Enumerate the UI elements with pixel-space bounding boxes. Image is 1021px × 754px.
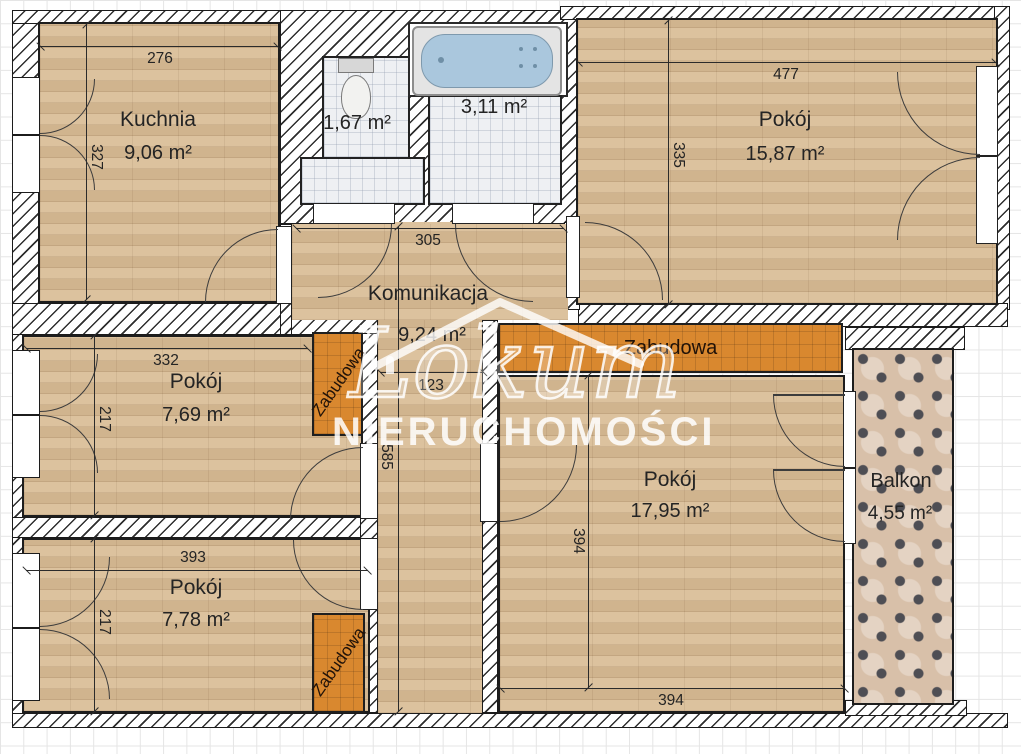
room-label-pokoj-a: Pokój — [715, 108, 855, 132]
dimension-label: 394 — [569, 511, 587, 571]
door-opening-kitchen — [276, 226, 292, 304]
floor-plan: Zabudowa Zabudowa Zabudowa — [0, 0, 1021, 754]
door-opening-bathroom — [452, 203, 534, 224]
room-area-wc: 1,67 m² — [298, 112, 416, 135]
dimension-line — [500, 688, 845, 689]
balcony-floor — [852, 348, 954, 705]
dimension-label: 332 — [135, 352, 197, 370]
dimension-label: 394 — [640, 692, 702, 710]
dimension-line — [26, 570, 368, 571]
wall-hatch-balcony-top — [845, 327, 965, 350]
dimension-label: 477 — [750, 66, 822, 84]
window-divider — [12, 627, 40, 629]
room-label-pokoj-c: Pokój — [126, 576, 266, 600]
bathtub-jet — [533, 47, 537, 51]
dimension-label: 217 — [95, 592, 113, 652]
dimension-label: 276 — [125, 50, 195, 68]
watermark-brand: Lokum — [340, 316, 690, 412]
room-area-pokoj-a: 15,87 m² — [705, 143, 865, 166]
dimension-line — [26, 348, 308, 349]
door-opening-wc — [313, 203, 395, 224]
dimension-line — [296, 228, 564, 229]
dimension-label: 217 — [95, 389, 113, 449]
room-area-lazienka: 3,11 m² — [430, 96, 558, 119]
room-area-kuchnia: 9,06 m² — [78, 142, 238, 165]
room-label-kuchnia: Kuchnia — [78, 108, 238, 132]
room-label-balkon: Balkon — [845, 470, 957, 493]
dimension-label: 393 — [162, 549, 224, 567]
room-label-pokoj-b: Pokój — [126, 370, 266, 394]
wc-floor-lower — [300, 157, 425, 205]
window-divider — [12, 134, 40, 136]
watermark-subtitle: NIERUCHOMOŚCI — [332, 410, 700, 455]
wall-hatch-between-rooms — [12, 517, 378, 538]
room-area-pokoj-b: 7,69 m² — [116, 404, 276, 427]
toilet-icon — [338, 58, 374, 73]
dimension-line — [578, 62, 996, 63]
room-area-pokoj-d: 17,95 m² — [590, 500, 750, 523]
door-opening-pokoj-a — [566, 216, 580, 298]
room-area-pokoj-c: 7,78 m² — [116, 609, 276, 632]
bathtub-drain — [438, 57, 444, 63]
room-label-pokoj-d: Pokój — [600, 468, 740, 492]
bathtub-jet — [533, 64, 537, 68]
dimension-line — [40, 46, 278, 47]
window-divider — [12, 414, 40, 416]
bathtub-jet — [519, 47, 523, 51]
room-area-balkon: 4,55 m² — [840, 503, 960, 525]
dimension-label: 305 — [392, 232, 464, 250]
dimension-label: 335 — [669, 125, 687, 185]
bathtub-jet — [519, 64, 523, 68]
